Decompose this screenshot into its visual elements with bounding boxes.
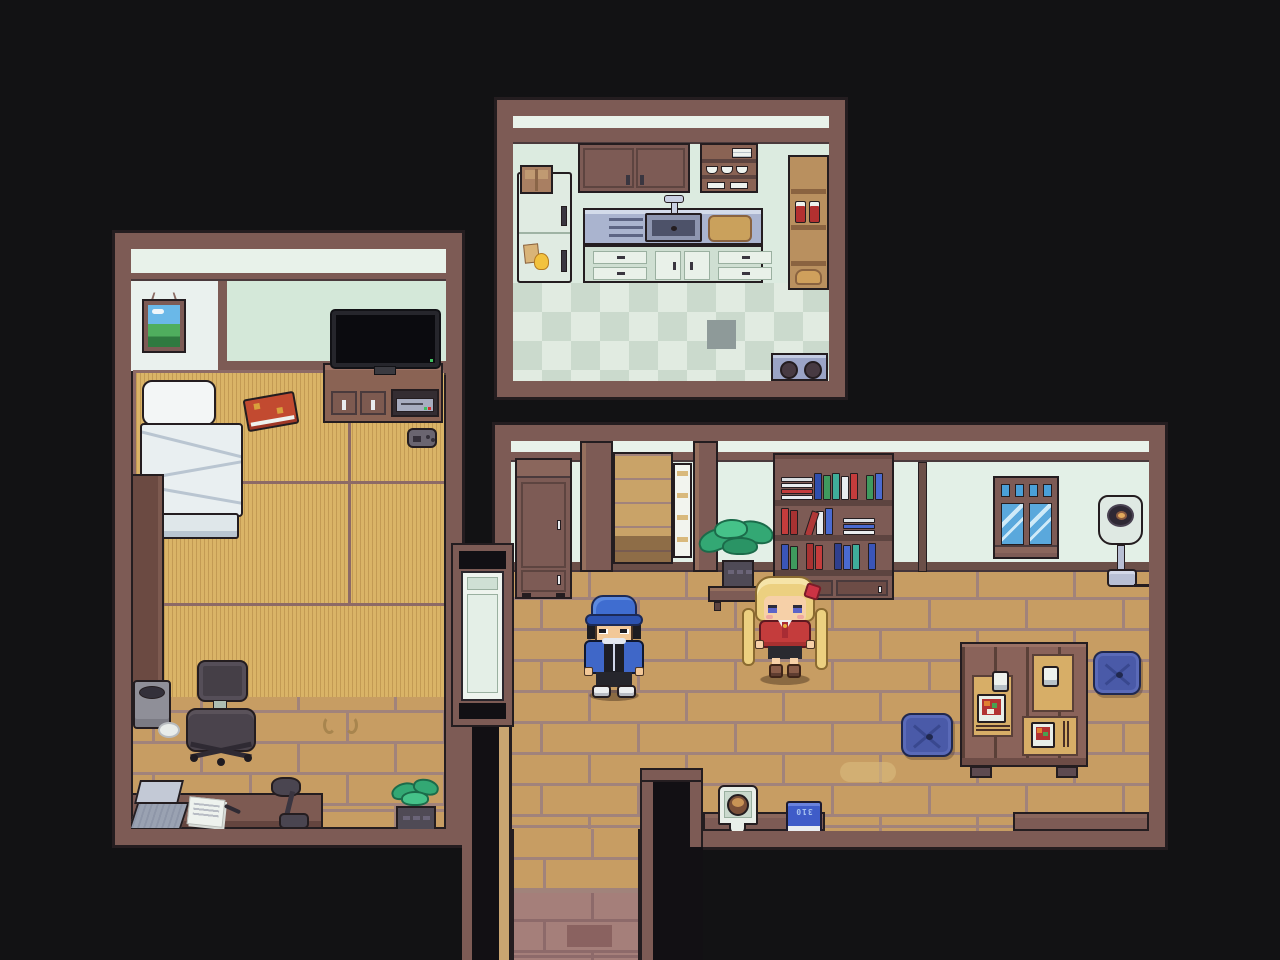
floor-brick-joint bbox=[346, 775, 349, 803]
pillar bbox=[580, 441, 613, 572]
kitchen-wall-top-strip bbox=[513, 116, 829, 128]
chopsticks-icon bbox=[976, 725, 1010, 731]
floor-brick-joint bbox=[540, 600, 543, 628]
door-handle-icon bbox=[673, 262, 676, 270]
book-spine bbox=[834, 543, 842, 570]
floor-cushion[interactable] bbox=[1093, 651, 1141, 695]
floor-brick-joint bbox=[394, 697, 397, 710]
button-icon bbox=[431, 438, 435, 442]
floor-brick-joint bbox=[297, 697, 300, 710]
upper-cabinets[interactable] bbox=[578, 143, 690, 193]
blue-floor-book[interactable]: 310 bbox=[786, 801, 822, 831]
book-stack bbox=[781, 477, 813, 500]
fridge-divider bbox=[519, 232, 570, 234]
picture bbox=[144, 301, 184, 351]
floor-brick-joint bbox=[394, 744, 397, 772]
wall-cap bbox=[640, 768, 703, 782]
tv-stand-drawer[interactable] bbox=[360, 391, 386, 415]
floor-lamp[interactable] bbox=[1098, 495, 1148, 591]
wall-post bbox=[918, 462, 927, 572]
girl-twintail bbox=[742, 608, 755, 666]
drawer-handle-icon bbox=[742, 272, 750, 275]
floor-brick-joint bbox=[831, 662, 834, 690]
window-pane-tall bbox=[1029, 503, 1052, 545]
book-spine bbox=[832, 473, 840, 500]
boy-shoe bbox=[617, 685, 636, 698]
faucet-pipe bbox=[671, 202, 678, 214]
alcove-passage[interactable] bbox=[613, 452, 673, 564]
pillow bbox=[142, 380, 216, 426]
window-pane-small bbox=[1001, 484, 1010, 497]
ladder-rungs bbox=[677, 471, 688, 553]
floor-brick-joint bbox=[1025, 600, 1028, 628]
girl-hand bbox=[755, 640, 764, 649]
plant-leaf-icon bbox=[722, 537, 758, 555]
door-handle-icon bbox=[690, 262, 693, 270]
floor-brick-joint bbox=[540, 786, 543, 814]
floor-brick-joint bbox=[540, 724, 543, 752]
book-spine bbox=[841, 476, 849, 500]
kitchen-dark-tile bbox=[707, 320, 736, 349]
pantry-shelf[interactable] bbox=[788, 155, 829, 290]
box-tape bbox=[535, 169, 538, 191]
tv[interactable] bbox=[332, 311, 439, 375]
bedroom-wall-rail bbox=[131, 273, 446, 281]
laptop-keyboard bbox=[131, 802, 190, 829]
floor-brick-joint bbox=[928, 786, 931, 814]
book-spine bbox=[790, 546, 798, 570]
drawer-handle-icon bbox=[342, 400, 346, 410]
book-spine bbox=[843, 545, 851, 570]
book-spine bbox=[815, 545, 823, 570]
floor-brick-joint bbox=[591, 953, 594, 960]
bin-opening bbox=[139, 686, 165, 699]
drawer-handle-icon bbox=[617, 256, 625, 259]
book-flat bbox=[843, 524, 875, 529]
tv-stand-drawer[interactable] bbox=[331, 391, 357, 415]
corridor-floor-wood bbox=[514, 829, 638, 893]
food-bit-icon bbox=[984, 701, 990, 706]
food-bit-icon bbox=[1037, 728, 1042, 733]
lamp-cord-icon bbox=[1134, 573, 1149, 587]
floor-brick-joint bbox=[976, 572, 979, 597]
book-spine bbox=[806, 543, 814, 570]
game-controller[interactable] bbox=[407, 428, 437, 448]
floor-brick-joint bbox=[879, 631, 882, 659]
food-bit-icon bbox=[992, 703, 997, 708]
book-spine bbox=[850, 473, 858, 500]
floor-brick-joint bbox=[928, 662, 931, 690]
boy-eye-icon bbox=[599, 629, 608, 634]
table-leg bbox=[970, 766, 992, 778]
heater-body bbox=[718, 785, 758, 825]
floor-highlight bbox=[840, 762, 896, 782]
tv-stand-neck bbox=[374, 366, 396, 375]
floor-brick-joint bbox=[588, 755, 591, 783]
lamp-bulb-icon bbox=[1116, 511, 1127, 520]
entry-dark-patch bbox=[567, 925, 612, 947]
wall-edge bbox=[640, 782, 653, 960]
floor-brick-joint bbox=[685, 693, 688, 721]
book-flat bbox=[781, 477, 813, 482]
floor-brick-joint bbox=[1122, 724, 1125, 752]
food-bit-icon bbox=[1043, 732, 1048, 736]
plant-leaf-icon bbox=[401, 791, 429, 806]
corridor-right-wall bbox=[640, 768, 703, 960]
chopsticks-icon bbox=[1063, 721, 1069, 747]
tatami-seam bbox=[136, 603, 444, 606]
book-ornament-icon bbox=[253, 403, 260, 410]
book-ornament-icon bbox=[276, 407, 283, 414]
floor-brick-joint bbox=[976, 817, 979, 831]
bookshelf-shelf bbox=[779, 541, 888, 570]
folded-towels bbox=[730, 182, 748, 189]
stain-arc bbox=[323, 716, 336, 734]
sink[interactable] bbox=[645, 213, 702, 242]
alcove-shadow bbox=[615, 536, 673, 564]
boy-shoe bbox=[592, 685, 611, 698]
tv-power-led-icon bbox=[430, 359, 433, 362]
burner-icon bbox=[804, 361, 822, 379]
cushion-knot-icon bbox=[1116, 672, 1123, 678]
lamp-base bbox=[1107, 569, 1137, 587]
kitchen-counter bbox=[583, 208, 763, 245]
chair-wheel-icon bbox=[190, 754, 198, 762]
cabinet-foot bbox=[522, 593, 531, 598]
low-table[interactable] bbox=[960, 642, 1088, 779]
kitchen-drawer[interactable] bbox=[718, 251, 772, 264]
fridge-handle-icon bbox=[561, 250, 567, 272]
folded-towels bbox=[707, 182, 725, 189]
cabinet-handle-icon bbox=[626, 175, 630, 185]
corridor-left-wall bbox=[462, 710, 512, 960]
floor-brick-joint bbox=[637, 724, 640, 752]
girl-eye-icon bbox=[793, 605, 802, 613]
bread-loaf bbox=[795, 269, 822, 285]
teacup[interactable] bbox=[992, 671, 1009, 692]
book-pages bbox=[251, 415, 295, 427]
floor-stain bbox=[323, 716, 359, 736]
floor-brick-joint bbox=[297, 744, 300, 772]
book-spine bbox=[852, 544, 860, 570]
girl-npc[interactable] bbox=[742, 574, 828, 686]
kitchen-cabinet-door[interactable] bbox=[684, 251, 710, 280]
floor-brick-joint bbox=[879, 817, 882, 831]
wall-edge bbox=[690, 782, 703, 847]
plates bbox=[732, 148, 752, 158]
pot-slit bbox=[413, 816, 420, 820]
book-label: 310 bbox=[788, 807, 820, 816]
console-nook bbox=[391, 389, 439, 417]
floor-brick-joint bbox=[782, 755, 785, 783]
dish-shelf-board bbox=[702, 159, 756, 163]
floor-brick-joint bbox=[782, 693, 785, 721]
game-console[interactable] bbox=[396, 398, 434, 412]
cabinet-foot bbox=[556, 593, 565, 598]
drain-icon bbox=[671, 226, 677, 231]
book-spine bbox=[875, 473, 883, 500]
stain-arc bbox=[345, 716, 358, 734]
floor-brick-joint bbox=[1122, 600, 1125, 628]
window-ledge bbox=[995, 545, 1057, 553]
paper-ball[interactable] bbox=[158, 722, 180, 738]
floor-brick-joint bbox=[831, 600, 834, 628]
book-spine bbox=[790, 510, 798, 535]
chair-back bbox=[197, 660, 248, 702]
floor-cushion[interactable] bbox=[901, 713, 953, 757]
lamp-opening bbox=[1107, 504, 1134, 527]
door-handle-icon bbox=[557, 520, 561, 530]
heater-burner bbox=[727, 794, 749, 816]
door-handle-icon bbox=[878, 586, 882, 593]
plant-pot bbox=[396, 806, 436, 829]
book-stack bbox=[843, 518, 875, 535]
heater-tab bbox=[729, 823, 746, 831]
kitchen-wall-rail bbox=[513, 128, 829, 144]
book-flat bbox=[781, 489, 813, 494]
preserve-jar bbox=[795, 201, 806, 223]
book-spine bbox=[781, 508, 789, 535]
book-flat bbox=[781, 483, 813, 488]
parapet-wall bbox=[1013, 812, 1149, 831]
book-spine bbox=[823, 475, 831, 500]
drawer-handle-icon bbox=[742, 256, 750, 259]
book-spine bbox=[825, 508, 833, 535]
floor-brick-joint bbox=[685, 631, 688, 659]
bookshelf-door[interactable] bbox=[836, 580, 888, 596]
tv-screen bbox=[332, 311, 439, 367]
boy-hand bbox=[584, 667, 593, 676]
food-bit-icon bbox=[987, 709, 994, 714]
kitchen-cabinet-door[interactable] bbox=[655, 251, 681, 280]
floor-brick-joint bbox=[591, 893, 594, 919]
pantry-board bbox=[791, 225, 826, 230]
bento-box[interactable] bbox=[1031, 722, 1055, 748]
drawer-handle-icon bbox=[371, 400, 375, 410]
living-room: 310 bbox=[495, 425, 1165, 847]
girl-hand bbox=[806, 640, 815, 649]
preserve-jar bbox=[809, 201, 820, 223]
window-pane-small bbox=[1029, 484, 1038, 497]
power-led-icon bbox=[428, 407, 431, 410]
cardboard-box[interactable] bbox=[520, 165, 553, 194]
heater-coal-icon bbox=[732, 798, 744, 807]
wall-lip bbox=[499, 722, 509, 960]
console-slot bbox=[401, 403, 423, 405]
blanket-fold bbox=[140, 429, 243, 461]
girl-twintail bbox=[815, 608, 828, 670]
kitchen-room bbox=[497, 100, 845, 397]
floor-brick-joint bbox=[879, 693, 882, 721]
floor-brick-joint bbox=[1122, 786, 1125, 814]
burner-icon bbox=[780, 361, 798, 379]
power-led-icon bbox=[424, 407, 427, 410]
book-page-band bbox=[788, 826, 820, 831]
boy-cap-brim bbox=[585, 614, 643, 626]
floor-brick-joint bbox=[543, 922, 546, 950]
door-pane-large bbox=[467, 594, 498, 693]
laptop-screen bbox=[134, 780, 184, 804]
book-flat bbox=[843, 518, 875, 523]
floor-brick-joint bbox=[831, 724, 834, 752]
girl-eye-icon bbox=[768, 605, 777, 613]
connecting-door[interactable] bbox=[461, 571, 504, 701]
cabinet-handle-icon bbox=[640, 175, 644, 185]
floor-brick-joint bbox=[1025, 786, 1028, 814]
desk-lamp[interactable] bbox=[271, 777, 309, 829]
dpad-icon bbox=[413, 436, 421, 442]
floor-brick-joint bbox=[734, 662, 737, 690]
door-pane-small bbox=[467, 577, 498, 590]
floor-brick-joint bbox=[928, 600, 931, 628]
bedroom-wall-top-strip bbox=[131, 249, 446, 273]
floor-brick-joint bbox=[443, 713, 445, 741]
girl-button-icon bbox=[783, 624, 787, 628]
bowl bbox=[736, 166, 748, 174]
cushion-knot-icon bbox=[926, 734, 933, 740]
window-pane-small bbox=[1043, 484, 1052, 497]
connecting-door-frame bbox=[453, 545, 512, 725]
drying-rack bbox=[609, 218, 643, 242]
game-scene: 310 bbox=[0, 0, 1280, 960]
kitchen-drawer[interactable] bbox=[593, 251, 647, 264]
lamp-head bbox=[271, 777, 301, 797]
book-spine bbox=[866, 475, 874, 500]
boy-npc[interactable] bbox=[583, 593, 645, 703]
lamp-shade bbox=[1098, 495, 1143, 545]
bowl bbox=[706, 166, 718, 174]
wall-edge bbox=[462, 710, 472, 960]
dish-shelf[interactable] bbox=[700, 143, 758, 193]
door-handle-icon bbox=[557, 575, 561, 585]
bowl bbox=[721, 166, 733, 174]
living-window bbox=[995, 478, 1057, 557]
table-leg bbox=[1056, 766, 1078, 778]
faucet[interactable] bbox=[664, 195, 684, 213]
dish-shelf-board bbox=[702, 175, 756, 179]
book-spine bbox=[781, 544, 789, 570]
kitchen-interior bbox=[513, 116, 829, 381]
pot-slit bbox=[728, 570, 734, 574]
floor-brick-joint bbox=[685, 572, 688, 597]
girl-boot bbox=[769, 664, 783, 678]
desk-chair[interactable] bbox=[186, 660, 256, 766]
girl-blush-icon bbox=[766, 615, 773, 619]
stove[interactable] bbox=[771, 353, 828, 381]
cabinet-top-band bbox=[517, 460, 570, 478]
space-heater[interactable] bbox=[718, 785, 758, 831]
chick-sticker-icon bbox=[534, 253, 549, 270]
floor-brick-joint bbox=[831, 786, 834, 814]
corridor[interactable] bbox=[512, 829, 640, 960]
bookshelf-shelf bbox=[779, 470, 888, 500]
bookshelf-shelf bbox=[779, 506, 888, 535]
living-interior: 310 bbox=[511, 441, 1149, 831]
bento-box[interactable] bbox=[977, 694, 1006, 723]
papers[interactable] bbox=[187, 796, 226, 828]
floor-brick-joint bbox=[543, 860, 546, 888]
floor-brick-joint bbox=[591, 829, 594, 857]
girl-boot bbox=[787, 664, 801, 678]
pantry-board bbox=[791, 189, 826, 194]
girl-blush-icon bbox=[797, 615, 804, 619]
fridge-handle-icon bbox=[561, 206, 567, 226]
book-spine bbox=[814, 473, 822, 500]
door-gap-bottom bbox=[459, 703, 506, 719]
cloud-icon bbox=[152, 309, 164, 314]
npc-shadow bbox=[756, 673, 814, 686]
boy-hand bbox=[635, 667, 644, 676]
button-icon bbox=[426, 435, 430, 439]
pot-slit bbox=[423, 816, 430, 820]
window-pane-small bbox=[1015, 484, 1024, 497]
kitchen-drawer[interactable] bbox=[718, 267, 772, 280]
lower-cabinets bbox=[583, 245, 763, 283]
cutting-board[interactable] bbox=[708, 215, 752, 242]
pantry-board bbox=[791, 261, 826, 266]
side-panel bbox=[131, 474, 164, 684]
boy-eye-icon bbox=[620, 629, 629, 634]
bedroom-interior bbox=[131, 249, 446, 829]
stand-leg bbox=[714, 602, 721, 611]
lamp-pole bbox=[1117, 545, 1125, 571]
kitchen-drawer[interactable] bbox=[593, 267, 647, 280]
chair-wheel-icon bbox=[217, 758, 225, 766]
floor-brick-joint bbox=[540, 662, 543, 690]
shelf-ladder bbox=[673, 463, 692, 558]
book-spine bbox=[868, 543, 876, 570]
laptop[interactable] bbox=[131, 780, 191, 829]
pot-slit bbox=[403, 816, 410, 820]
paper-lines bbox=[192, 803, 219, 820]
lamp-base bbox=[279, 813, 309, 829]
storage-cabinet[interactable] bbox=[515, 458, 572, 599]
window-pane-tall bbox=[1001, 503, 1024, 545]
drawer-handle-icon bbox=[617, 272, 625, 275]
bedroom-room bbox=[115, 233, 462, 845]
teacup[interactable] bbox=[1042, 666, 1059, 687]
floor-brick-joint bbox=[734, 724, 737, 752]
door-gap-top bbox=[459, 551, 506, 569]
floor-brick-joint bbox=[1073, 572, 1076, 597]
boy-zipper bbox=[613, 643, 615, 671]
picture-frame[interactable] bbox=[144, 289, 184, 351]
chair-wheel-icon bbox=[244, 754, 252, 762]
bedroom-plant[interactable] bbox=[389, 779, 445, 829]
